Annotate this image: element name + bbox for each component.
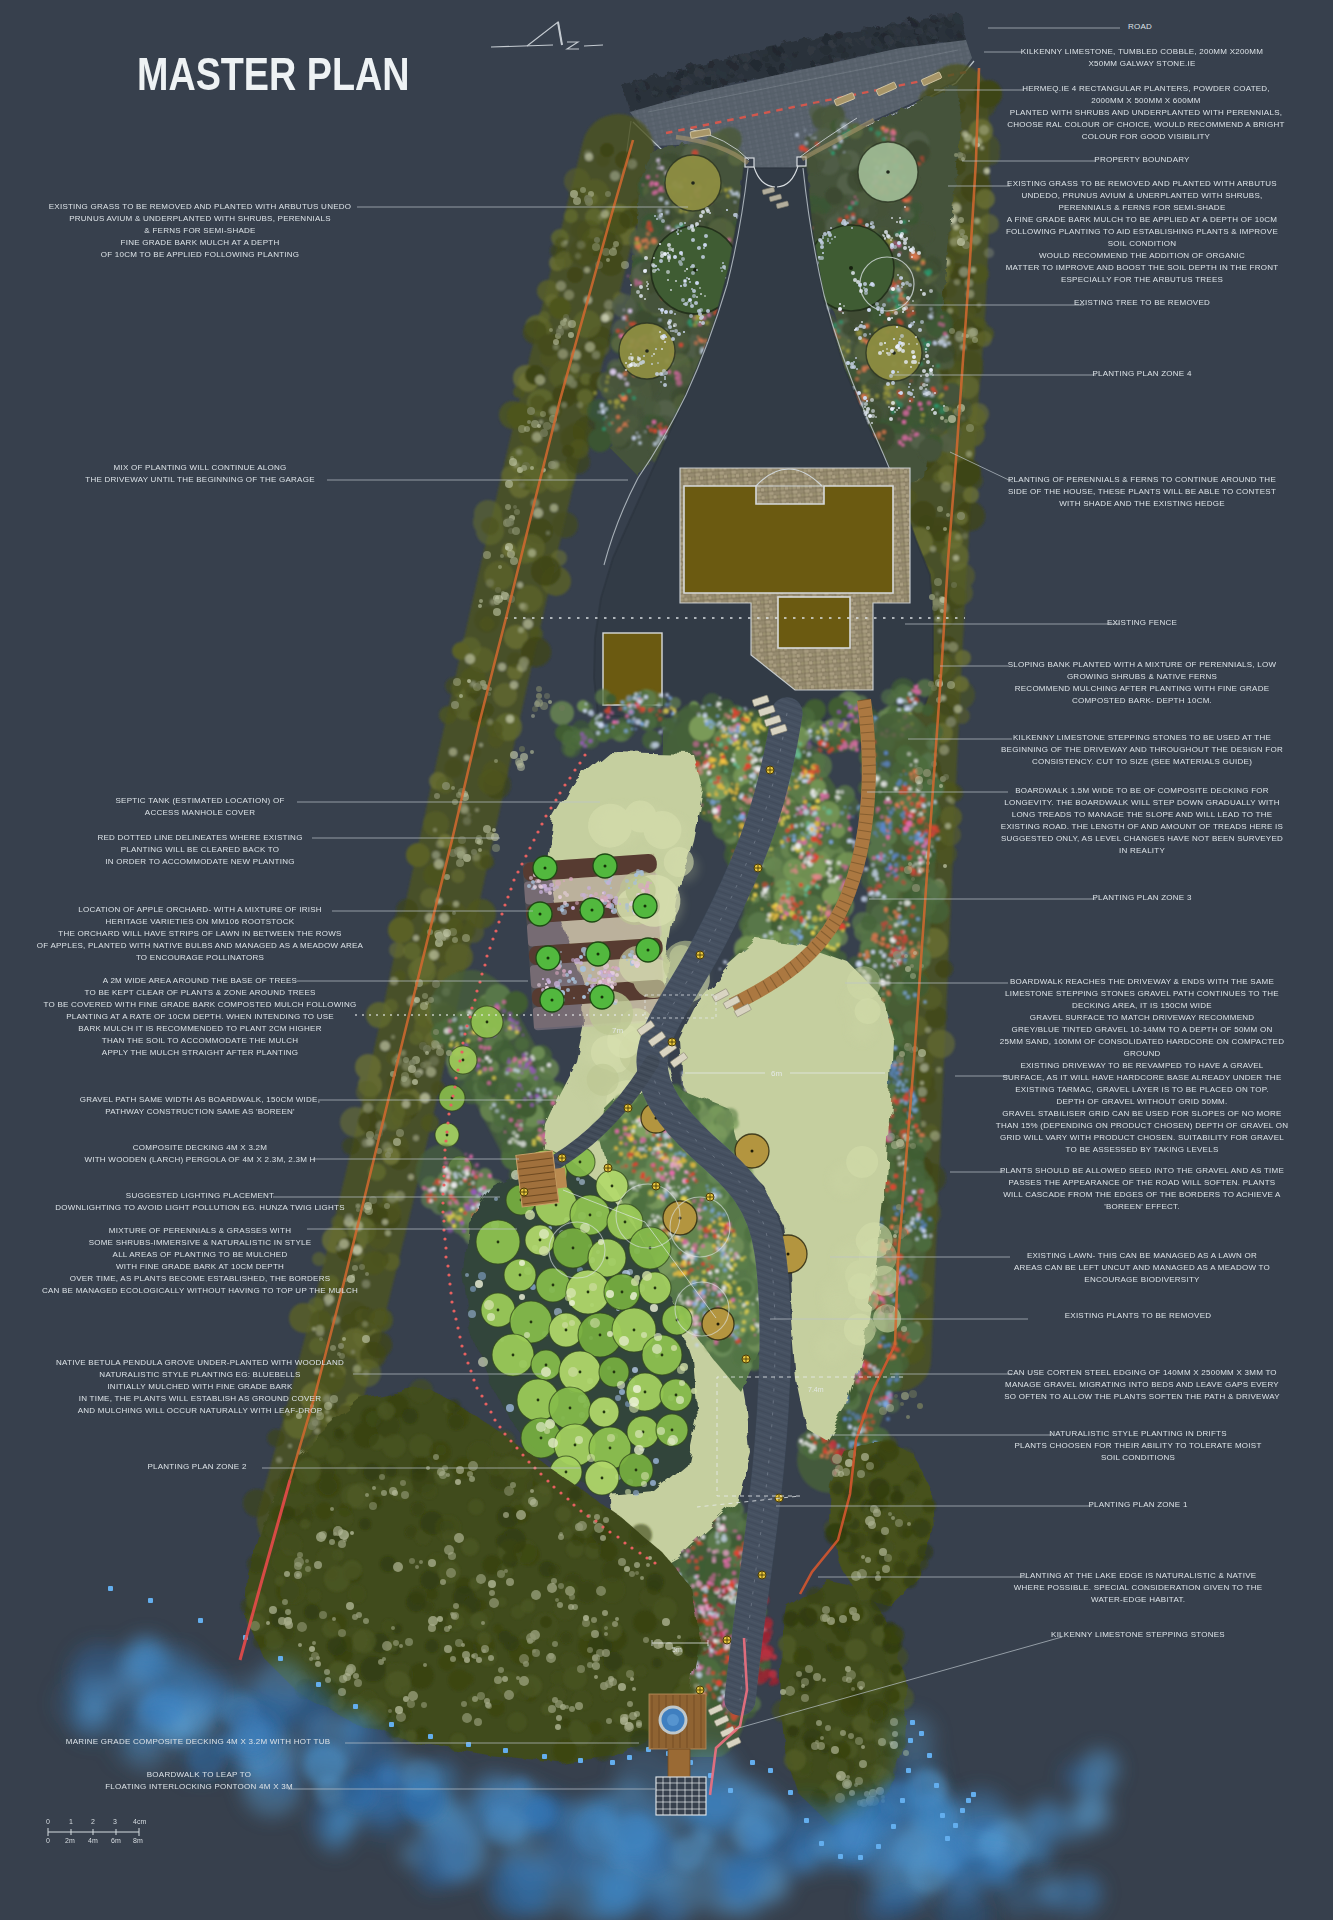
svg-text:7m: 7m bbox=[612, 1026, 623, 1035]
svg-text:6m: 6m bbox=[771, 1069, 782, 1078]
svg-text:7.4m: 7.4m bbox=[808, 1386, 824, 1393]
svg-text:5m: 5m bbox=[672, 1646, 682, 1653]
